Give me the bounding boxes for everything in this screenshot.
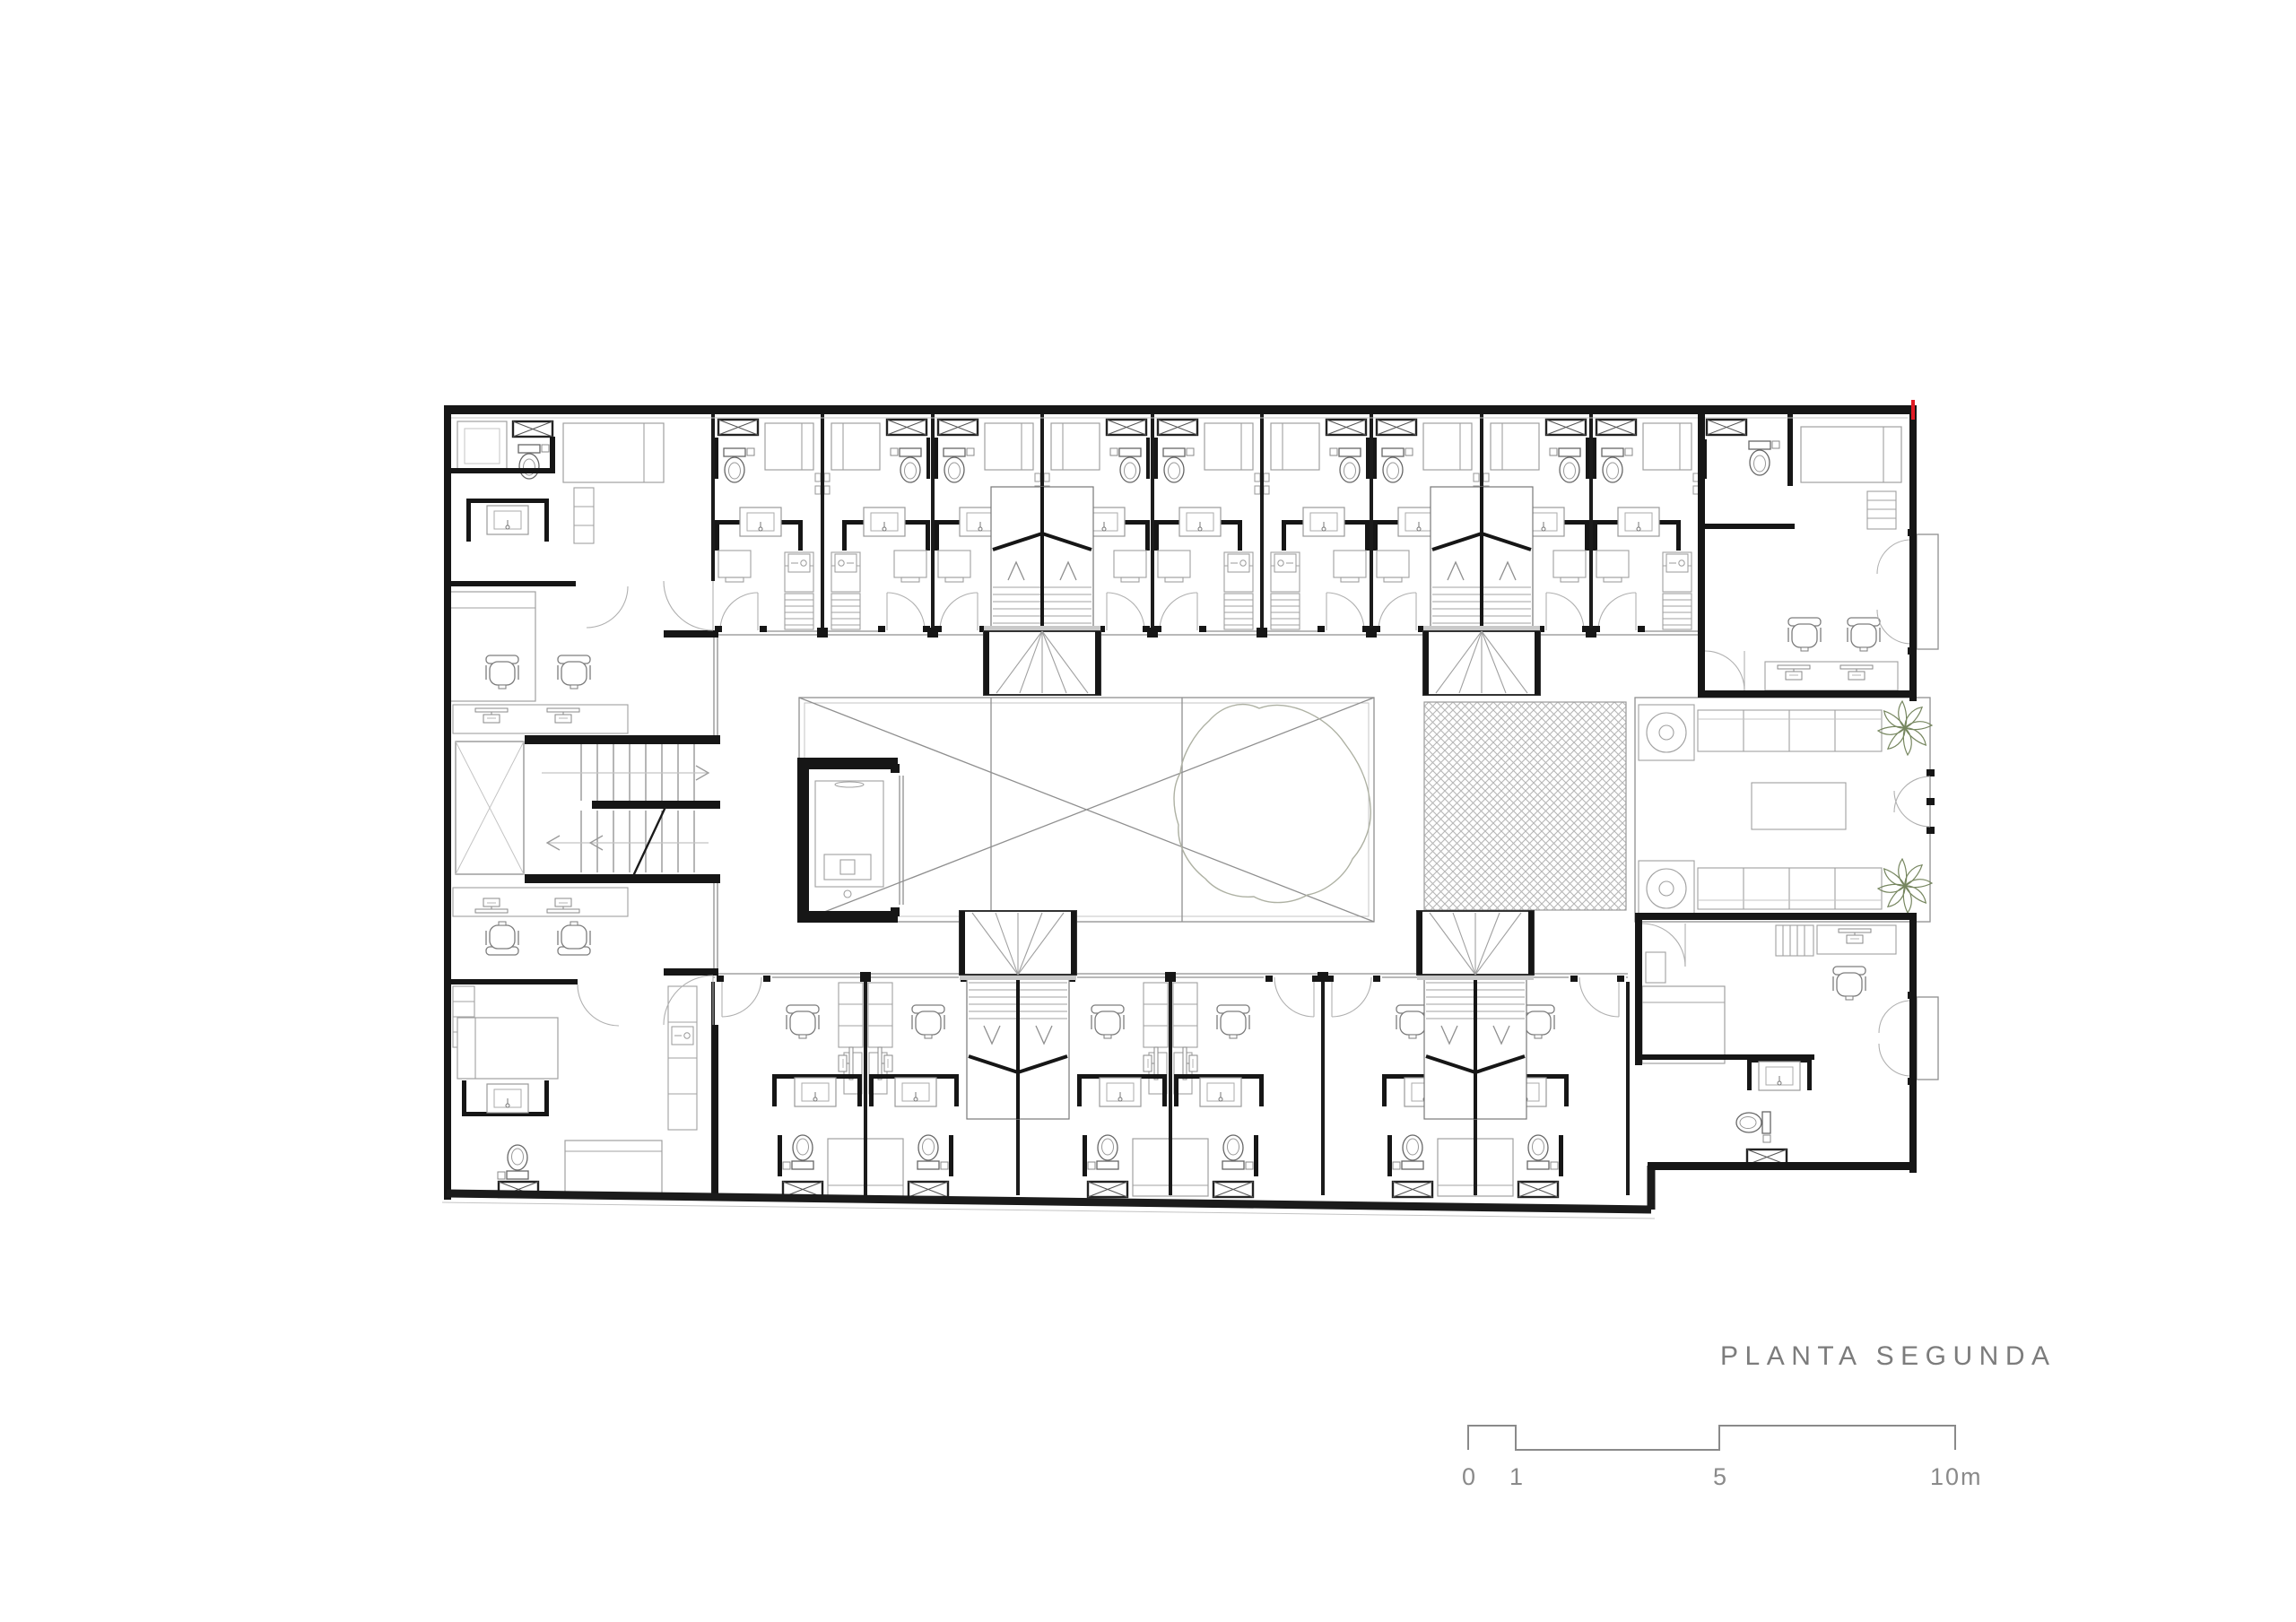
stair-core-top-1 xyxy=(984,487,1100,695)
bed-icon xyxy=(1801,427,1901,482)
studio-top-left xyxy=(447,421,664,701)
right-wall-lower xyxy=(1909,913,1917,1173)
stair-flight-lower xyxy=(547,807,709,876)
scale-label-5: 5 xyxy=(1713,1463,1728,1490)
red-survey-mark xyxy=(1911,400,1915,420)
stair-core-top-2 xyxy=(1423,487,1540,695)
scale-bar-line xyxy=(1468,1426,1955,1450)
room-top-right xyxy=(1698,414,1938,690)
elevator-car xyxy=(815,781,883,887)
terrace-bench-bottom xyxy=(1639,861,1882,916)
central-courtyard xyxy=(799,698,1374,922)
bed-icon xyxy=(565,1141,662,1196)
main-staircase-block xyxy=(456,735,720,883)
door-vestibule xyxy=(1917,534,1938,649)
top-room-row xyxy=(713,414,1701,638)
scale-label-0: 0 xyxy=(1462,1463,1477,1490)
door-vestibule xyxy=(1917,997,1938,1080)
stair-core-bottom-1 xyxy=(960,911,1076,1119)
stair-core-bottom-2 xyxy=(1417,911,1534,1119)
terrace-bench-top xyxy=(1639,705,1882,760)
scale-label-1: 1 xyxy=(1509,1463,1525,1490)
hatched-patio xyxy=(1424,702,1626,910)
terrace-table xyxy=(1752,783,1846,829)
courtyard-tree xyxy=(1174,705,1370,903)
lower-office xyxy=(453,888,628,955)
internal-stair xyxy=(1776,925,1813,956)
elevator xyxy=(797,758,903,923)
scale-label-10m: 10m xyxy=(1930,1463,1983,1490)
studio-bottom-left xyxy=(447,979,697,1197)
bed-icon xyxy=(457,1018,558,1079)
bed-icon xyxy=(1642,986,1725,1063)
scale-bar: 0 1 5 10m xyxy=(1462,1426,1983,1490)
courtyard-void-x xyxy=(799,698,1374,922)
left-wall xyxy=(444,405,451,1200)
room-bottom-right xyxy=(1642,924,1938,1165)
bed-icon xyxy=(563,423,664,482)
floor-plan-svg: PLANTA SEGUNDA 0 1 5 10m xyxy=(0,0,2296,1622)
plan-title: PLANTA SEGUNDA xyxy=(1720,1341,2057,1371)
terrace xyxy=(1635,698,1935,922)
right-wall-upper xyxy=(1909,405,1917,701)
stair-flight-upper xyxy=(542,744,709,801)
top-wall xyxy=(444,405,1917,414)
sheet: PLANTA SEGUNDA 0 1 5 10m xyxy=(0,0,2296,1622)
bottom-wall-right xyxy=(1648,1162,1917,1170)
internal-stair xyxy=(1867,491,1896,529)
left-wing-walls xyxy=(664,581,718,1200)
